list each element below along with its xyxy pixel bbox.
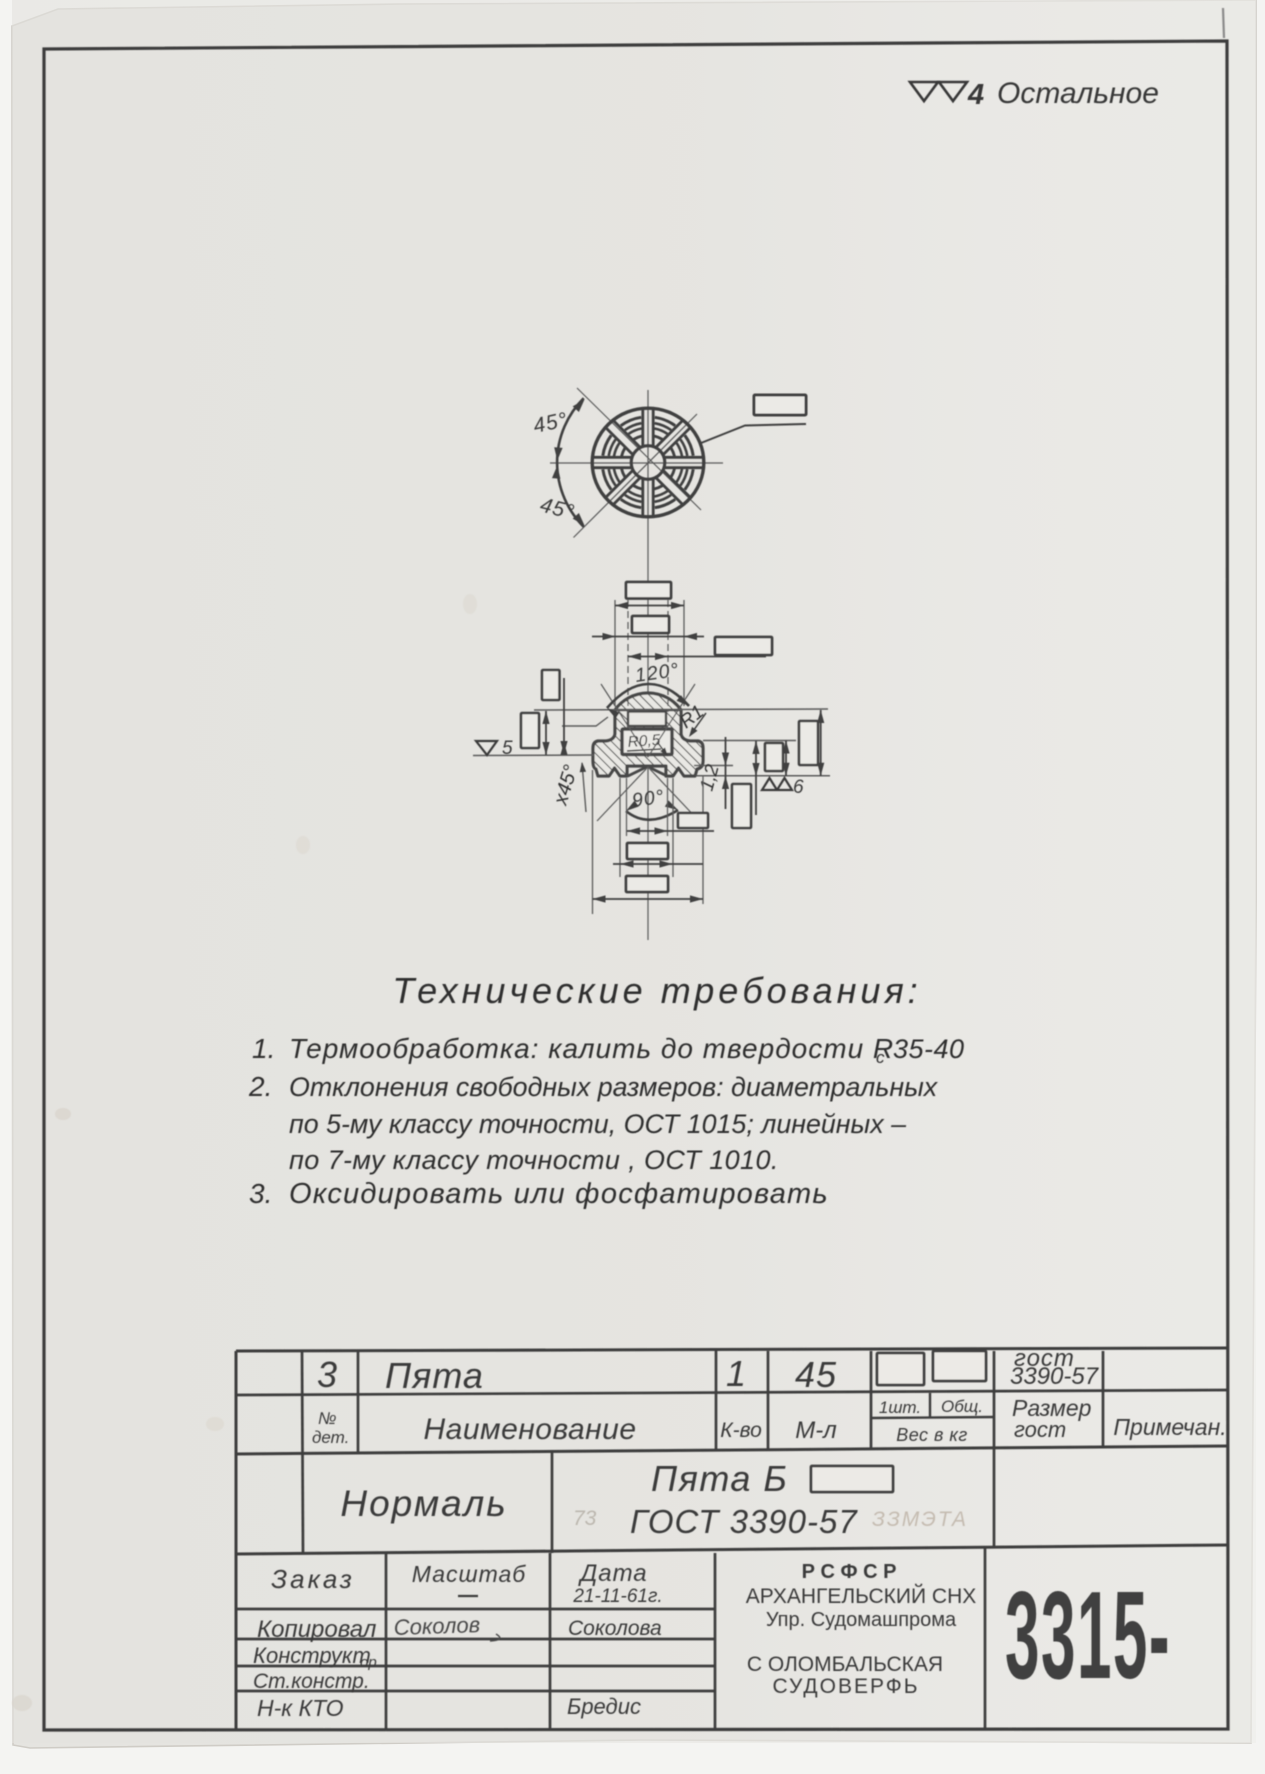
svg-text:Заказ: Заказ <box>271 1564 355 1594</box>
svg-text:2.: 2. <box>248 1071 272 1102</box>
svg-text:45: 45 <box>795 1354 837 1395</box>
svg-text:ГОСТ 3390-57: ГОСТ 3390-57 <box>630 1503 858 1540</box>
svg-text:35-40: 35-40 <box>893 1034 965 1064</box>
svg-text:1.: 1. <box>252 1033 275 1064</box>
svg-text:1шт.: 1шт. <box>879 1398 921 1417</box>
svg-text:по 7-му классу точности , ОСТ: по 7-му классу точности , ОСТ 1010. <box>289 1145 779 1175</box>
svg-text:90°: 90° <box>631 786 666 812</box>
svg-text:Оксидировать или фосфатировать: Оксидировать или фосфатировать <box>289 1178 829 1210</box>
svg-text:Н-к КТО: Н-к КТО <box>257 1695 344 1721</box>
svg-text:3: 3 <box>317 1354 337 1395</box>
svg-text:Дата: Дата <box>577 1560 647 1587</box>
svg-text:АРХАНГЕЛЬСКИЙ СНХ: АРХАНГЕЛЬСКИЙ СНХ <box>746 1584 977 1608</box>
svg-text:Р С Ф С Р: Р С Ф С Р <box>802 1561 897 1583</box>
svg-text:Примечан.: Примечан. <box>1113 1414 1226 1440</box>
svg-text:Конструкт: Конструкт <box>253 1643 371 1668</box>
svg-text:по 5-му классу точности, ОСТ 1: по 5-му классу точности, ОСТ 1015; линей… <box>289 1109 907 1139</box>
svg-text:Бредис: Бредис <box>567 1694 641 1719</box>
svg-text:К-во: К-во <box>720 1419 762 1442</box>
svg-text:Копировал: Копировал <box>257 1616 377 1643</box>
svg-text:Наименование: Наименование <box>423 1413 636 1446</box>
svg-text:R0,5: R0,5 <box>627 732 661 751</box>
svg-text:№: № <box>318 1409 336 1428</box>
svg-text:Пята Б: Пята Б <box>651 1458 788 1499</box>
svg-text:гост: гост <box>1014 1417 1066 1442</box>
svg-text:Термообработка: калить до твер: Термообработка: калить до твердости R <box>289 1033 894 1064</box>
svg-text:Вес в кг: Вес в кг <box>896 1425 968 1445</box>
svg-text:5: 5 <box>502 738 513 759</box>
svg-text:Технические требования:: Технические требования: <box>392 970 921 1011</box>
svg-text:С ОЛОМБАЛЬСКАЯ: С ОЛОМБАЛЬСКАЯ <box>747 1653 943 1676</box>
svg-text:73: 73 <box>573 1507 597 1530</box>
svg-text:ЗЗМЭТА: ЗЗМЭТА <box>872 1508 968 1531</box>
svg-text:Нормаль: Нормаль <box>340 1483 507 1524</box>
svg-text:Соколова: Соколова <box>568 1617 662 1640</box>
svg-text:1: 1 <box>726 1353 746 1394</box>
svg-text:21-11-61г.: 21-11-61г. <box>572 1586 662 1607</box>
svg-text:СУДОВЕРФЬ: СУДОВЕРФЬ <box>773 1675 920 1698</box>
svg-text:дет.: дет. <box>312 1428 349 1447</box>
svg-text:ор: ор <box>360 1654 377 1671</box>
svg-text:Остальное: Остальное <box>997 77 1159 110</box>
svg-text:4: 4 <box>967 79 984 111</box>
svg-text:Отклонения свободных размеров:: Отклонения свободных размеров: диаметрал… <box>289 1072 939 1102</box>
svg-text:3.: 3. <box>249 1178 272 1209</box>
svg-text:Масштаб: Масштаб <box>412 1561 526 1587</box>
svg-text:3390-57: 3390-57 <box>1010 1363 1100 1390</box>
svg-text:3315-: 3315- <box>1005 1565 1171 1704</box>
svg-text:Упр. Судомашпрома: Упр. Судомашпрома <box>766 1609 957 1631</box>
svg-text:Пята: Пята <box>385 1355 484 1396</box>
svg-text:c: c <box>876 1048 885 1067</box>
svg-text:Соколов: Соколов <box>393 1612 480 1640</box>
svg-text:6: 6 <box>793 777 804 798</box>
svg-text:М-л: М-л <box>795 1417 837 1444</box>
svg-text:Ст.констр.: Ст.констр. <box>253 1670 370 1693</box>
svg-text:Общ.: Общ. <box>941 1397 983 1416</box>
